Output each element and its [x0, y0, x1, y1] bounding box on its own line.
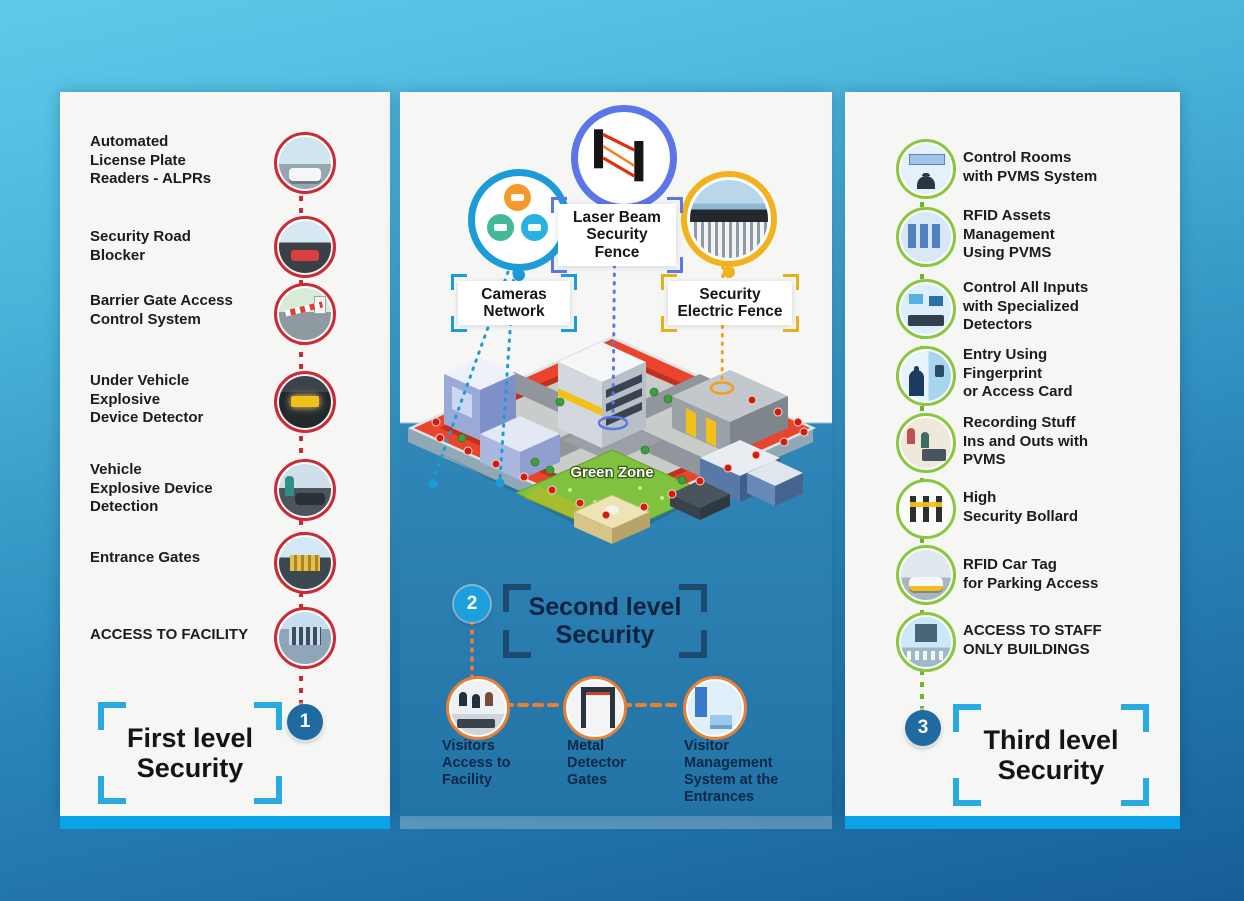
bracket-frame [551, 197, 683, 273]
first-level-title-brackets: First level Security [98, 702, 282, 804]
item-label: ACCESS TO FACILITY [90, 626, 295, 645]
electric-fence-icon-art [690, 180, 768, 258]
rfid-car-tag-icon [896, 545, 956, 605]
access-facility-photo-icon [274, 607, 336, 669]
metal-detector-icon [563, 676, 627, 740]
laser-beam-icon-art [581, 115, 667, 201]
laser-beam-glyph [581, 115, 659, 193]
laser-beam-callout: Laser Beam Security Fence [558, 204, 676, 266]
third-level-title: Third level Security [953, 704, 1149, 806]
access-staff-buildings-icon [896, 612, 956, 672]
item-label: Automated License Plate Readers - ALPRs [90, 133, 295, 189]
control-rooms-icon [896, 139, 956, 199]
second-level-title-brackets: Second level Security [503, 584, 707, 658]
entrance-gates-photo-icon [274, 532, 336, 594]
road-blocker-photo-icon [274, 216, 336, 278]
item-label: Security Road Blocker [90, 228, 295, 265]
item-label: RFID Car Tag for Parking Access [963, 556, 1173, 593]
visitors-access-icon [446, 676, 510, 740]
item-label: Entrance Gates [90, 549, 295, 568]
bottom-item-label: Metal Detector Gates [567, 738, 677, 789]
third-level-title-brackets: Third level Security [953, 704, 1149, 806]
item-label: Recording Stuff Ins and Outs with PVMS [963, 414, 1173, 470]
camera-dot-cyan [521, 214, 548, 241]
camera-dot-teal [487, 214, 514, 241]
item-label: RFID Assets Management Using PVMS [963, 207, 1173, 263]
item-label: ACCESS TO STAFF ONLY BUILDINGS [963, 622, 1173, 659]
callout-brackets [551, 197, 683, 273]
level-2-badge: 2 [454, 586, 490, 622]
first-level-title: First level Security [98, 702, 282, 804]
electric-fence-icon [681, 171, 777, 267]
control-inputs-icon [896, 279, 956, 339]
item-label: Entry Using Fingerprint or Access Card [963, 346, 1173, 402]
electric-fence-callout: Security Electric Fence [668, 281, 792, 325]
bottom-item-label: Visitor Management System at the Entranc… [684, 738, 809, 806]
item-label: Control All Inputs with Specialized Dete… [963, 279, 1173, 335]
cameras-network-icon-art [478, 179, 560, 261]
callout-brackets [661, 274, 799, 332]
level-1-badge: 1 [287, 704, 323, 740]
visitor-management-icon [683, 676, 747, 740]
second-level-panel: Green Zone [400, 92, 832, 816]
alpr-photo-icon [274, 132, 336, 194]
level-3-badge: 3 [905, 710, 941, 746]
recording-staff-icon [896, 413, 956, 473]
vehicle-explosive-photo-icon [274, 459, 336, 521]
rfid-assets-icon [896, 207, 956, 267]
third-level-panel: Control Rooms with PVMS System RFID Asse… [845, 92, 1180, 816]
under-vehicle-detector-photo-icon [274, 371, 336, 433]
callout-brackets [451, 274, 577, 332]
first-level-panel: Automated License Plate Readers - ALPRs … [60, 92, 390, 816]
item-label: Under Vehicle Explosive Device Detector [90, 372, 295, 428]
item-label: Barrier Gate Access Control System [90, 292, 295, 329]
security-levels-infographic: Automated License Plate Readers - ALPRs … [0, 0, 1244, 901]
fingerprint-entry-icon [896, 346, 956, 406]
item-label: Vehicle Explosive Device Detection [90, 461, 295, 517]
barrier-gate-photo-icon [274, 283, 336, 345]
camera-dot-orange [504, 184, 531, 211]
bottom-item-label: Visitors Access to Facility [442, 738, 552, 789]
item-label: High Security Bollard [963, 489, 1173, 526]
cameras-network-callout: Cameras Network [458, 281, 570, 325]
security-bollard-icon [896, 479, 956, 539]
bracket-frame [661, 274, 799, 332]
item-label: Control Rooms with PVMS System [963, 149, 1173, 186]
second-level-title: Second level Security [503, 584, 707, 658]
laser-beam-icon [571, 105, 677, 211]
bracket-frame [451, 274, 577, 332]
